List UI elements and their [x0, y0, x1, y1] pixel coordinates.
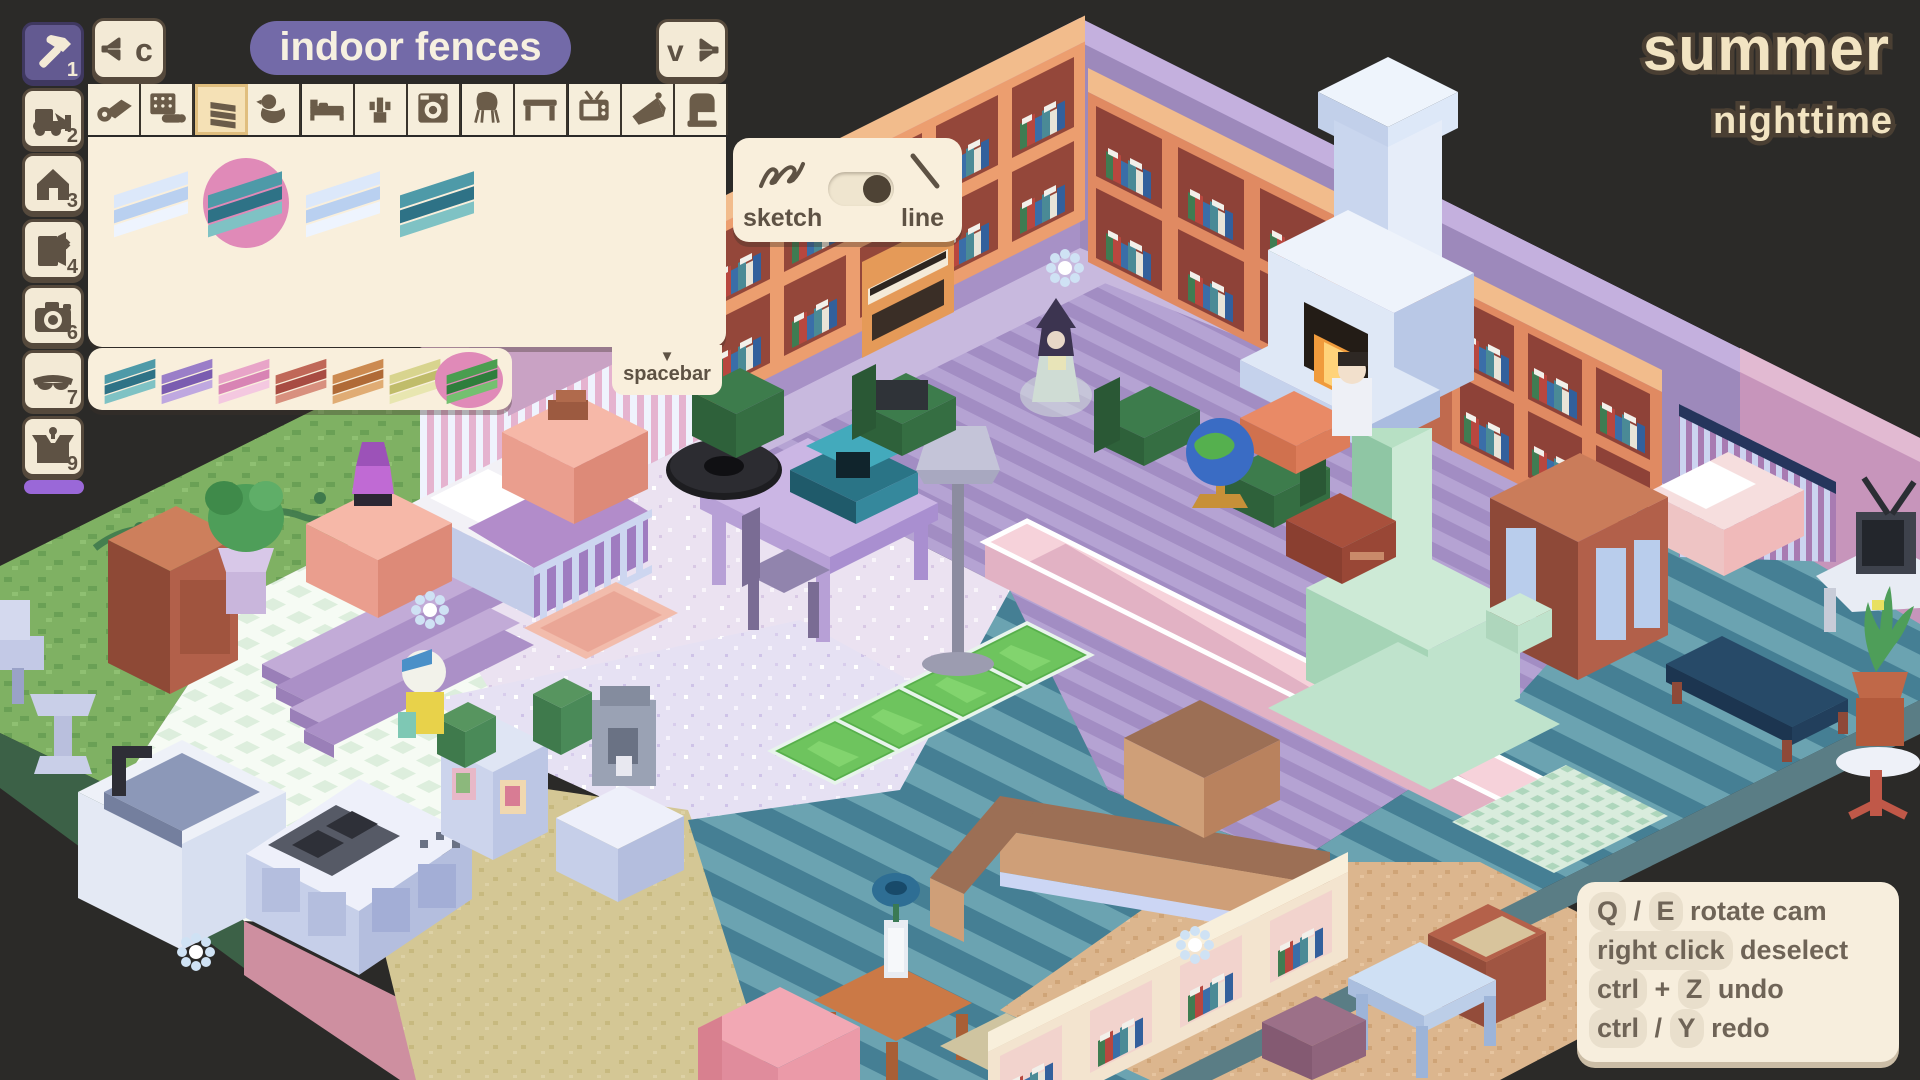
- svg-text:v: v: [667, 35, 684, 68]
- svg-text:c: c: [135, 32, 153, 68]
